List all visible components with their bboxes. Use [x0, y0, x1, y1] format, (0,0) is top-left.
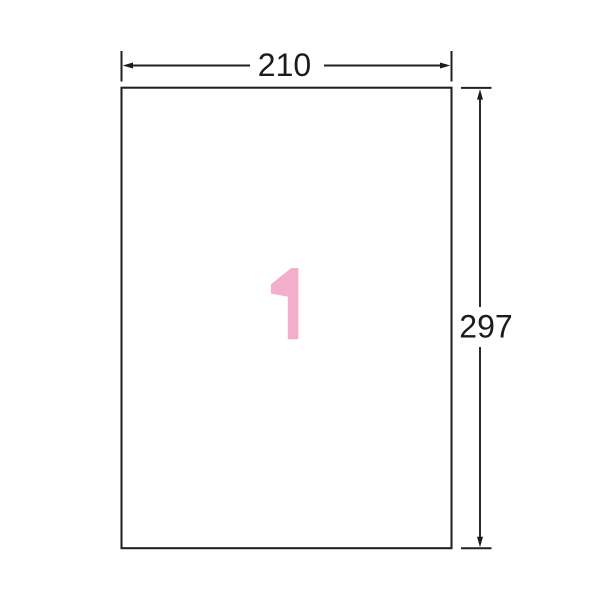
svg-text:297: 297 — [459, 309, 512, 345]
svg-text:210: 210 — [258, 47, 311, 83]
